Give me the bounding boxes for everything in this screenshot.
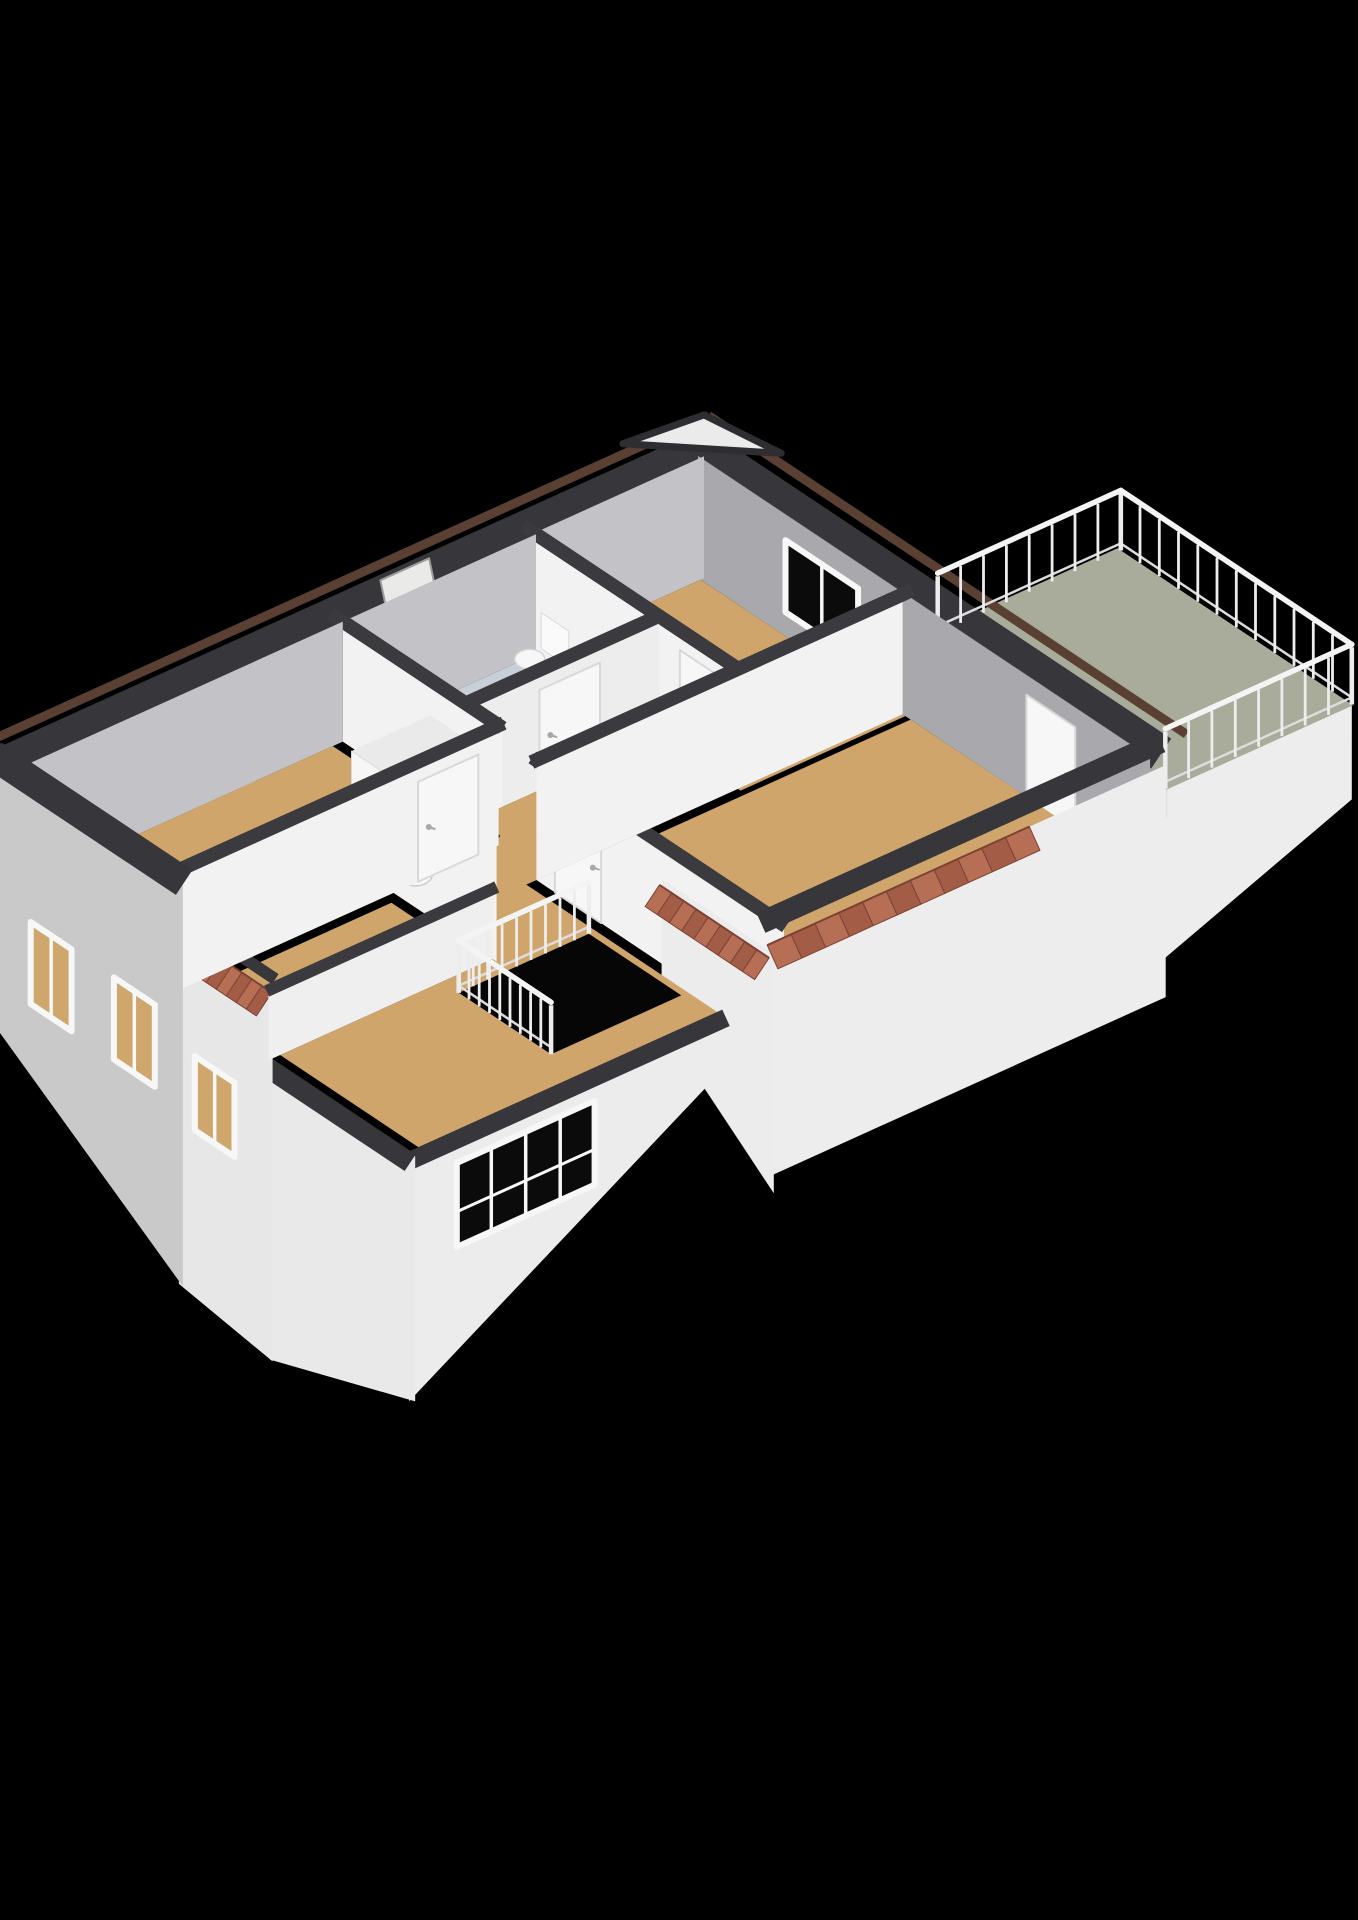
roof-gable bbox=[623, 415, 781, 453]
floorplan-canvas bbox=[0, 0, 1358, 1920]
floorplan-3d-render bbox=[0, 0, 1358, 1920]
